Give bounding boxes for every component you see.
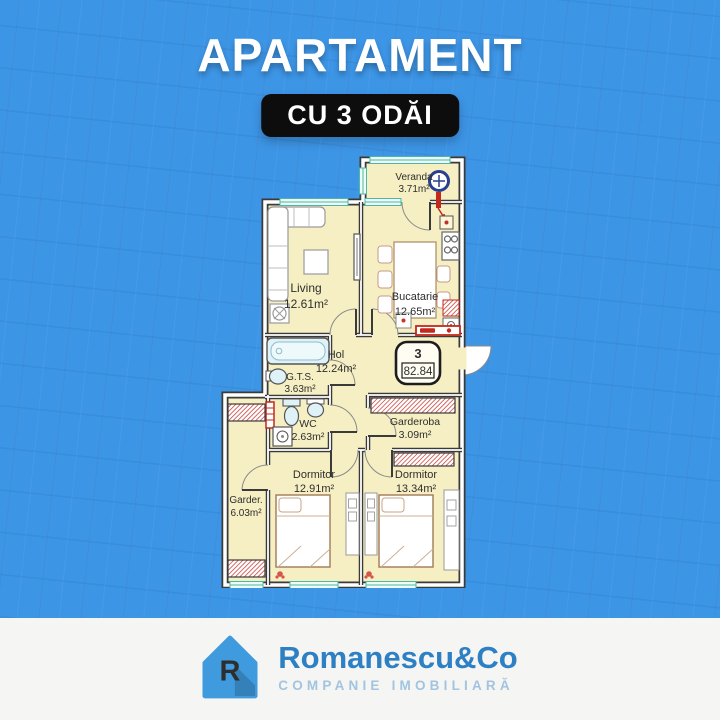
stove-icon xyxy=(442,232,459,260)
garderoba-area: 3.09m² xyxy=(399,429,432,441)
gts-label: G.T.S. xyxy=(286,372,314,383)
footer: R Romanescu&Co COMPANIE IMOBILIARĂ xyxy=(0,618,720,720)
floor-number: 3 xyxy=(414,346,421,361)
tv-icon xyxy=(354,234,360,280)
bathtub-icon xyxy=(267,338,329,364)
hol-label: Hol xyxy=(328,349,345,361)
washing-machine-icon xyxy=(273,427,292,446)
veranda-label: Veranda xyxy=(395,172,433,183)
brand-name: Romanescu&Co xyxy=(278,641,517,675)
garder-left-area: 6.03m² xyxy=(230,508,262,519)
wc-area: 2.63m² xyxy=(292,431,325,443)
garderoba-label: Garderoba xyxy=(390,416,440,428)
brand-tagline: COMPANIE IMOBILIARĂ xyxy=(278,678,517,693)
radiator-icon xyxy=(266,402,274,428)
dormitor2-area: 13.34m² xyxy=(396,483,437,495)
floor-plan: 3 82.84 Veranda 3.71m² Living 12.61m² Bu… xyxy=(218,150,498,588)
rooms-count-badge: CU 3 ODĂI xyxy=(261,94,459,137)
hol-area: 12.24m² xyxy=(316,363,357,375)
dormitor1-label: Dormitor xyxy=(293,469,336,481)
bucatarie-area: 12.65m² xyxy=(395,306,436,318)
rooms-count-label: CU 3 ODĂI xyxy=(287,100,433,130)
living-area: 12.61m² xyxy=(284,297,328,311)
dormitor2-label: Dormitor xyxy=(395,469,438,481)
kitchen-sink-unit xyxy=(443,300,459,316)
toilet-icon xyxy=(283,399,300,426)
page-title: APARTAMENT xyxy=(0,28,720,82)
dormitor1-area: 12.91m² xyxy=(294,483,335,495)
veranda-area: 3.71m² xyxy=(398,184,430,195)
poster: APARTAMENT CU 3 ODĂI xyxy=(0,0,720,720)
wc-label: WC xyxy=(299,418,317,430)
gts-area: 3.63m² xyxy=(284,384,316,395)
total-area-value: 82.84 xyxy=(404,366,433,378)
bucatarie-label: Bucatarie xyxy=(392,291,438,303)
kitchen-red-counter xyxy=(416,326,460,335)
house-r-icon: R xyxy=(202,634,258,700)
total-area-badge: 3 82.84 xyxy=(396,342,440,384)
living-label: Living xyxy=(290,281,321,295)
logo-text: Romanescu&Co COMPANIE IMOBILIARĂ xyxy=(278,641,517,693)
floor-plan-drawing: 3 82.84 Veranda 3.71m² Living 12.61m² Bu… xyxy=(218,150,498,588)
bedroom2-furniture xyxy=(364,490,459,579)
logo: R Romanescu&Co COMPANIE IMOBILIARĂ xyxy=(202,634,517,700)
svg-text:R: R xyxy=(220,656,241,688)
wc-sink-icon xyxy=(307,399,324,417)
garder-left-label: Garder. xyxy=(229,495,262,506)
